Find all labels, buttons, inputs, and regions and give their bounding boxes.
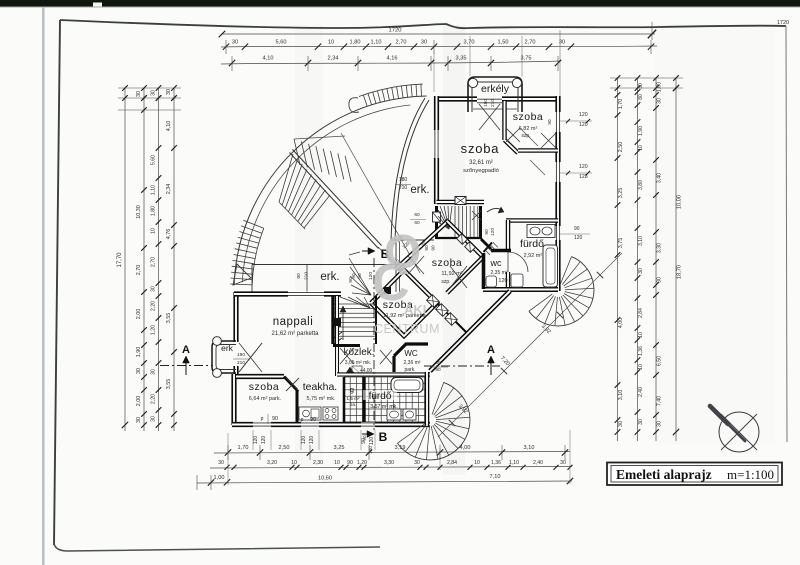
svg-text:30: 30 [151,286,157,292]
svg-text:30: 30 [657,277,663,283]
svg-text:17,70: 17,70 [117,252,123,268]
svg-text:30: 30 [638,83,644,89]
svg-text:30: 30 [618,421,624,427]
svg-text:90: 90 [574,226,580,232]
svg-text:erk: erk [221,343,234,353]
svg-text:120: 120 [579,164,588,170]
svg-text:10: 10 [328,40,334,46]
svg-text:90: 90 [357,273,362,279]
svg-text:szp.: szp. [441,279,450,285]
svg-text:A: A [182,344,190,356]
svg-text:2,70: 2,70 [396,40,407,46]
svg-text:1,5 m²: 1,5 m² [346,396,359,401]
svg-text:2,40: 2,40 [533,460,543,466]
svg-text:90: 90 [484,229,490,235]
svg-text:3,30: 3,30 [384,460,394,466]
svg-text:1,20: 1,20 [151,325,157,335]
svg-text:4,10: 4,10 [166,121,172,132]
svg-text:1,90: 1,90 [638,126,644,136]
svg-text:p: p [261,416,264,422]
svg-text:1,00: 1,00 [657,82,663,92]
svg-text:fürdő: fürdő [520,238,544,250]
svg-text:30: 30 [657,98,663,104]
svg-text:g: g [350,387,354,394]
svg-text:120: 120 [498,278,507,284]
svg-text:1,90: 1,90 [136,347,142,358]
svg-text:180: 180 [399,177,408,183]
svg-text:7,10: 7,10 [490,474,501,480]
svg-text:2,84: 2,84 [638,308,644,318]
svg-text:210: 210 [399,185,408,191]
svg-text:3,75: 3,75 [618,238,624,249]
svg-text:2,84: 2,84 [447,460,457,466]
svg-text:p: p [301,417,304,423]
svg-text:szoba: szoba [249,381,280,393]
svg-text:1,10: 1,10 [371,40,382,46]
svg-text:2,00: 2,00 [136,309,142,320]
svg-text:90: 90 [310,417,316,423]
svg-text:3,80: 3,80 [638,180,644,190]
svg-text:fürdő: fürdő [369,391,392,402]
svg-text:30: 30 [136,368,142,374]
svg-text:30: 30 [638,419,644,425]
svg-text:90: 90 [296,273,302,279]
svg-text:szoba: szoba [461,141,500,156]
svg-text:2,70: 2,70 [151,257,157,267]
svg-text:3,40: 3,40 [657,173,663,183]
svg-text:1720: 1720 [777,20,789,26]
svg-text:szoba: szoba [513,111,544,123]
svg-text:3,30: 3,30 [657,243,663,253]
svg-text:3,75: 3,75 [521,56,532,62]
svg-text:10,00: 10,00 [677,195,683,209]
svg-text:m=1:100: m=1:100 [727,467,774,482]
svg-text:3,25: 3,25 [618,188,624,199]
svg-text:30: 30 [560,460,566,466]
svg-text:7,40: 7,40 [657,396,663,406]
svg-text:30: 30 [136,417,142,423]
svg-text:1,10: 1,10 [151,185,157,195]
svg-text:30: 30 [414,460,420,466]
svg-text:18,70: 18,70 [677,265,683,279]
svg-text:2,30: 2,30 [313,460,323,466]
svg-text:90: 90 [362,435,367,441]
svg-text:1,70: 1,70 [618,99,624,110]
svg-text:1,20: 1,20 [357,460,367,466]
svg-text:nappali: nappali [273,316,314,328]
svg-text:120: 120 [253,436,259,445]
svg-text:2,20: 2,20 [151,394,157,404]
svg-text:10,30: 10,30 [136,205,142,219]
svg-text:10: 10 [291,460,297,466]
svg-text:10,60: 10,60 [318,476,332,482]
svg-text:30: 30 [151,90,157,96]
svg-text:30: 30 [657,421,663,427]
svg-text:közlek.: közlek. [343,347,374,358]
svg-text:21,62 m² parketta: 21,62 m² parketta [271,331,319,337]
svg-text:szoba: szoba [432,257,463,269]
svg-text:120: 120 [368,446,373,454]
svg-text:150: 150 [483,99,489,107]
svg-text:5,75 m² mk.: 5,75 m² mk. [306,396,336,402]
svg-text:30: 30 [421,40,427,46]
svg-text:120: 120 [261,436,267,445]
svg-text:park.: park. [404,367,415,373]
svg-text:3,20: 3,20 [267,460,277,466]
svg-text:4,00: 4,00 [618,318,624,329]
svg-text:3,65 m² mk.: 3,65 m² mk. [345,360,371,366]
svg-text:B: B [379,430,388,444]
svg-text:1,36: 1,36 [638,346,644,356]
svg-text:wc: wc [490,258,502,268]
svg-text:4,00: 4,00 [460,445,471,451]
svg-text:210: 210 [490,99,496,107]
svg-text:1,50: 1,50 [498,40,509,46]
svg-text:2,70: 2,70 [525,40,536,46]
svg-text:30: 30 [151,416,157,422]
svg-text:A: A [487,344,495,356]
svg-text:60: 60 [435,360,441,366]
svg-text:2,20: 2,20 [151,301,157,311]
svg-text:1,70: 1,70 [238,445,249,451]
svg-text:AKI: AKI [404,302,426,317]
svg-text:CENTRUM: CENTRUM [374,322,440,336]
svg-text:1,80: 1,80 [350,40,361,46]
svg-text:2,00: 2,00 [136,396,142,407]
svg-text:5,60: 5,60 [276,40,287,46]
svg-text:szőnyegpadló: szőnyegpadló [463,168,499,174]
svg-text:erk.: erk. [320,271,339,283]
svg-text:120: 120 [574,235,583,241]
svg-text:1,80: 1,80 [151,206,157,216]
svg-text:teakha.: teakha. [303,381,337,393]
svg-text:2,35 m²: 2,35 m² [491,270,508,276]
svg-text:120: 120 [579,112,588,118]
svg-text:1720: 1720 [389,28,402,34]
svg-text:2,34: 2,34 [328,56,339,62]
svg-text:210: 210 [304,272,310,280]
svg-text:3,35: 3,35 [456,56,467,62]
svg-text:3,10: 3,10 [618,390,624,401]
svg-text:90: 90 [435,367,441,373]
svg-text:3,10: 3,10 [638,236,644,246]
svg-text:2,70: 2,70 [136,265,142,276]
svg-text:WC: WC [404,349,418,358]
svg-text:90: 90 [347,460,353,466]
svg-text:5,60: 5,60 [151,155,157,165]
svg-text:2,50: 2,50 [279,445,290,451]
svg-text:1,10: 1,10 [509,460,519,466]
svg-text:90: 90 [351,273,356,279]
svg-text:30: 30 [151,369,157,375]
svg-text:erkély: erkély [481,83,510,95]
svg-text:90: 90 [547,119,552,125]
svg-text:90: 90 [424,245,430,251]
svg-text:6,50: 6,50 [657,356,663,366]
svg-text:4,76: 4,76 [166,229,172,240]
svg-text:3,10: 3,10 [524,445,535,451]
svg-text:bá.: bá. [350,402,356,407]
svg-text:2,34: 2,34 [166,184,172,195]
svg-text:30: 30 [166,89,172,95]
svg-text:10: 10 [638,332,644,338]
svg-text:2,40: 2,40 [638,387,644,397]
svg-text:120: 120 [490,228,496,236]
svg-text:Emeleti alaprajz: Emeleti alaprajz [616,467,712,482]
svg-text:60: 60 [414,212,420,218]
svg-text:30: 30 [136,91,142,97]
svg-text:90: 90 [272,416,278,422]
svg-text:erk.: erk. [410,184,429,196]
svg-text:1,36: 1,36 [491,460,501,466]
svg-text:32,61 m²: 32,61 m² [469,160,493,166]
svg-text:10: 10 [638,364,644,370]
svg-text:80: 80 [638,94,644,100]
svg-text:10: 10 [638,145,644,151]
svg-text:2,50: 2,50 [618,142,624,153]
svg-text:30: 30 [232,40,238,46]
svg-text:30: 30 [218,460,224,466]
svg-text:1,00: 1,00 [214,475,225,481]
svg-text:3,55: 3,55 [166,313,172,324]
svg-text:120: 120 [301,436,307,445]
svg-text:190: 190 [237,352,245,358]
svg-text:10: 10 [474,460,480,466]
svg-text:6,64 m² park.: 6,64 m² park. [249,396,282,402]
svg-text:120: 120 [369,437,375,446]
svg-text:10: 10 [151,228,157,234]
svg-text:120: 120 [309,436,315,445]
svg-text:3,55: 3,55 [166,379,172,390]
svg-text:10: 10 [334,460,340,466]
svg-text:4,10: 4,10 [263,56,274,62]
svg-text:2,36 m²: 2,36 m² [404,360,421,366]
svg-text:4,16: 4,16 [387,56,398,62]
svg-text:30: 30 [638,268,644,274]
svg-text:3,25: 3,25 [334,445,345,451]
svg-text:90: 90 [431,245,437,251]
svg-text:3,70: 3,70 [464,40,475,46]
